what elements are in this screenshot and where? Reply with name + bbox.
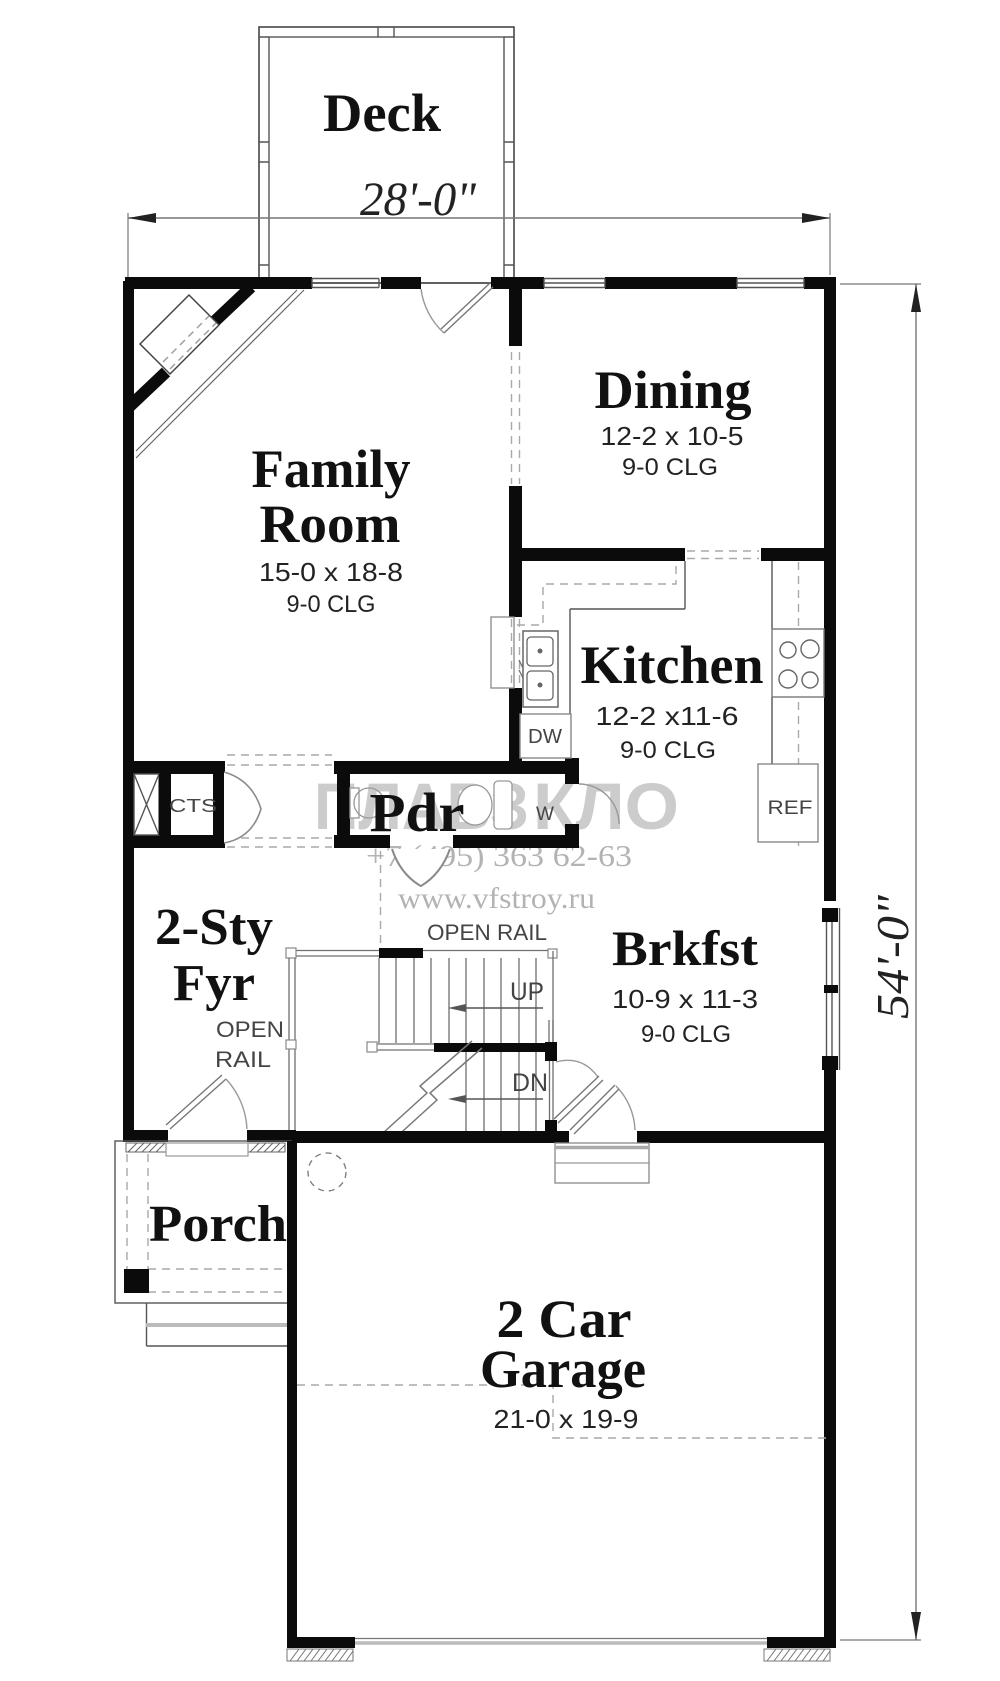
svg-text:DN: DN [512, 1069, 548, 1097]
svg-text:15-0 x 18-8: 15-0 x 18-8 [259, 557, 403, 587]
svg-text:Room: Room [260, 494, 401, 554]
svg-text:21-0 x 19-9: 21-0 x 19-9 [494, 1404, 639, 1434]
svg-text:54'-0": 54'-0" [868, 894, 918, 1019]
svg-text:12-2 x11-6: 12-2 x11-6 [596, 701, 739, 731]
svg-text:OPEN RAIL: OPEN RAIL [427, 920, 547, 945]
svg-text:Family: Family [252, 439, 411, 499]
svg-text:9-0 CLG: 9-0 CLG [622, 454, 718, 481]
svg-text:Kitchen: Kitchen [581, 635, 764, 695]
svg-text:9-0 CLG: 9-0 CLG [641, 1021, 731, 1048]
svg-text:DW: DW [528, 726, 562, 748]
svg-text:10-9 x 11-3: 10-9 x 11-3 [612, 984, 758, 1014]
svg-text:Deck: Deck [323, 83, 441, 143]
svg-text:UP: UP [510, 978, 544, 1006]
svg-text:W: W [536, 804, 554, 825]
svg-text:28'-0": 28'-0" [360, 173, 477, 226]
svg-text:Brkfst: Brkfst [612, 920, 758, 976]
svg-text:Fyr: Fyr [173, 955, 255, 1012]
svg-text:Garage: Garage [480, 1339, 646, 1399]
svg-text:12-2 x 10-5: 12-2 x 10-5 [601, 421, 744, 451]
svg-text:www.vfstroy.ru: www.vfstroy.ru [398, 882, 595, 915]
svg-text:Dining: Dining [595, 360, 752, 420]
svg-text:9-0 CLG: 9-0 CLG [620, 737, 716, 764]
svg-text:Pdr: Pdr [370, 782, 465, 843]
svg-text:RAIL: RAIL [215, 1047, 271, 1072]
svg-text:КЛО: КЛО [533, 769, 679, 843]
svg-text:CTS: CTS [169, 796, 217, 816]
svg-text:OPEN: OPEN [216, 1017, 284, 1042]
svg-text:2-Sty: 2-Sty [155, 899, 273, 956]
svg-text:9-0 CLG: 9-0 CLG [287, 591, 376, 618]
svg-text:Porch: Porch [149, 1196, 287, 1253]
svg-text:REF: REF [768, 798, 813, 819]
